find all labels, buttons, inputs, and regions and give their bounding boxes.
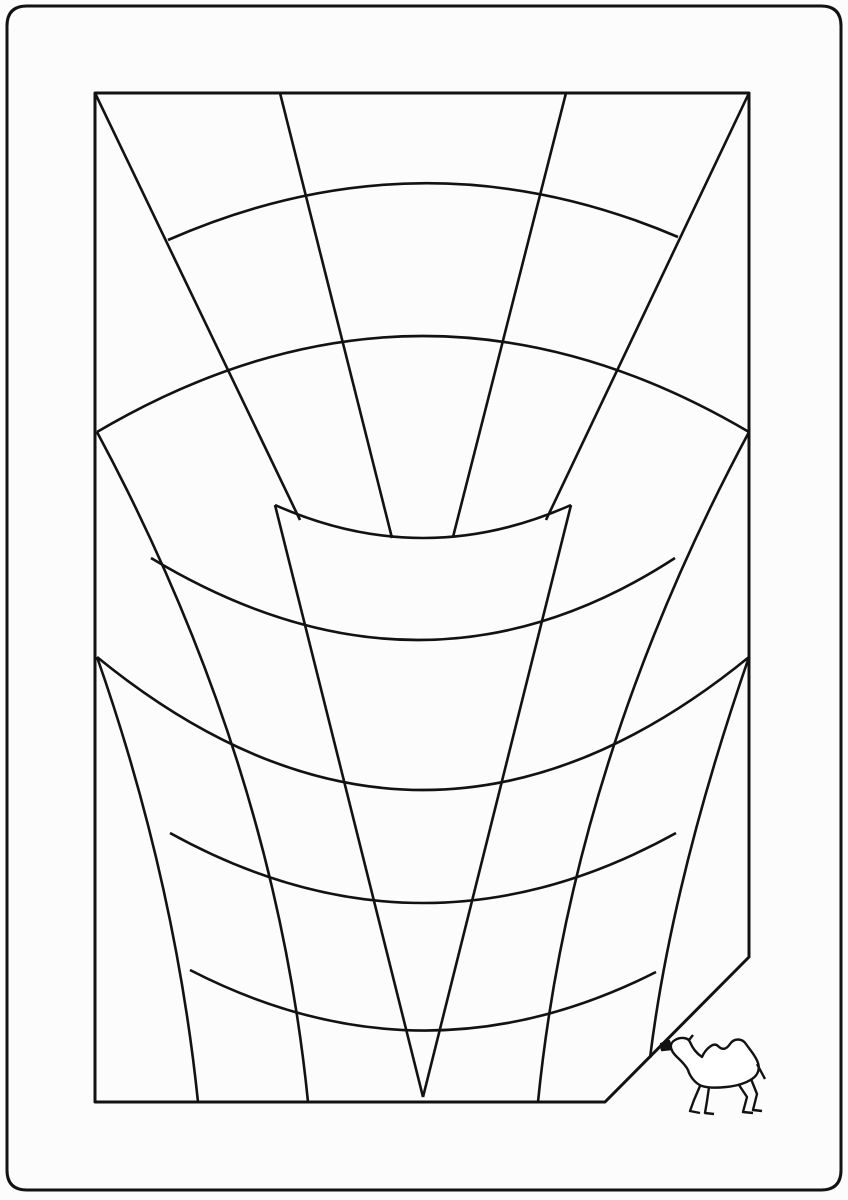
tier3-rim-sag xyxy=(190,970,656,1031)
tier2-radial-left-corner xyxy=(97,432,308,1102)
maze-drawing xyxy=(0,0,848,1200)
camel-layer xyxy=(661,1035,765,1114)
maze-lines-layer xyxy=(95,93,749,1102)
tier2-rim-sag xyxy=(170,833,676,903)
camel-hind-leg-1 xyxy=(739,1085,753,1113)
tier1-radial-center-right xyxy=(453,93,566,537)
tier1-radial-center-left xyxy=(280,93,392,538)
tier2-arc-upper xyxy=(151,558,675,640)
tier2-radial-center-left xyxy=(275,505,423,1097)
camel-front-leg-2 xyxy=(705,1087,714,1114)
camel-ear xyxy=(689,1035,693,1040)
tier2-radial-right-corner xyxy=(538,432,749,1102)
tier1-radial-right-corner xyxy=(546,93,749,520)
camel-front-leg-1 xyxy=(690,1086,700,1113)
camel-figure-body xyxy=(671,1038,759,1088)
camel-snout xyxy=(661,1041,671,1050)
camel-hind-leg-2 xyxy=(751,1079,762,1111)
tier1-radial-left-corner xyxy=(95,93,300,520)
tier3-arc-upper xyxy=(97,657,749,790)
puzzle-page xyxy=(0,0,848,1200)
inner-frame-clipped-corner xyxy=(95,93,749,1102)
tier1-arc-lower xyxy=(97,336,749,432)
tier1-arc-upper xyxy=(168,183,678,240)
tier2-radial-center-right xyxy=(423,505,571,1097)
tier3-radial-left-corner xyxy=(97,657,198,1102)
tier1-rim-sag xyxy=(275,505,571,538)
